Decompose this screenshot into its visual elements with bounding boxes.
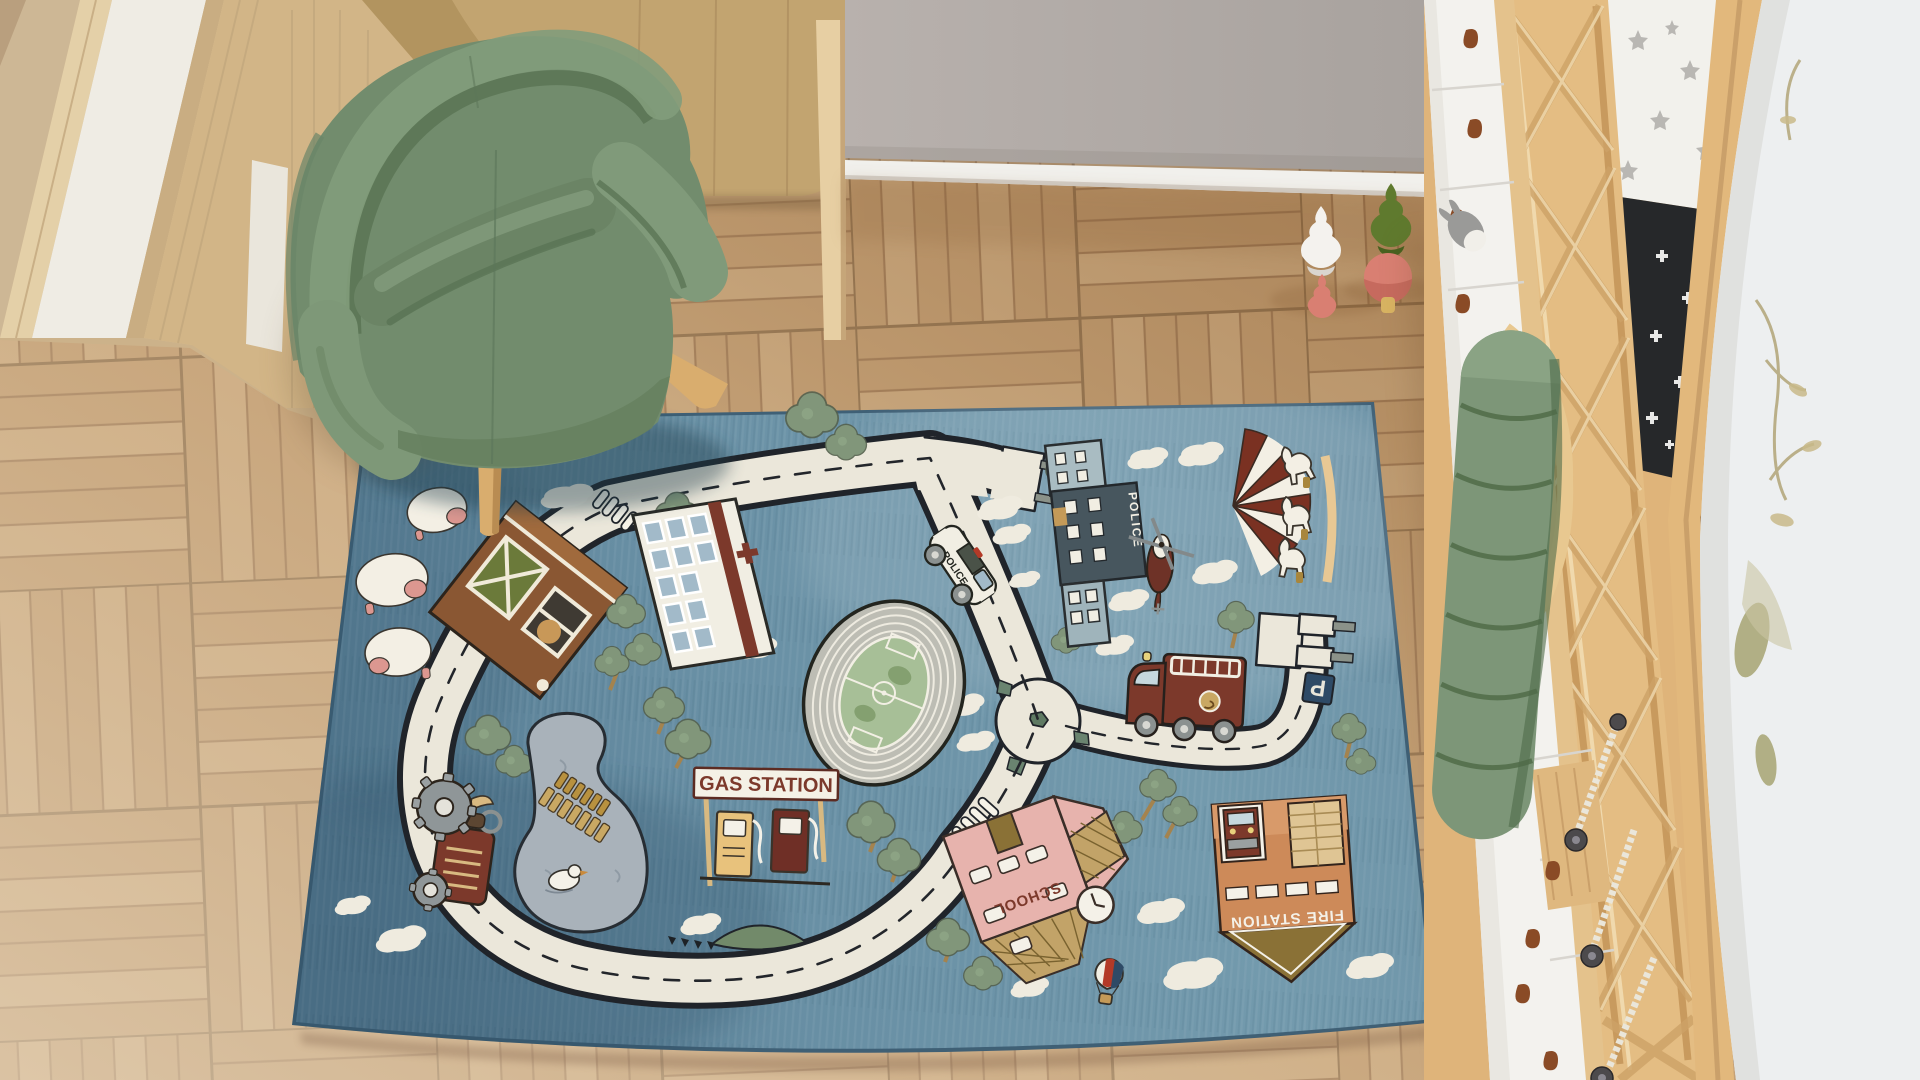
svg-text:GAS STATION: GAS STATION [699, 773, 833, 797]
